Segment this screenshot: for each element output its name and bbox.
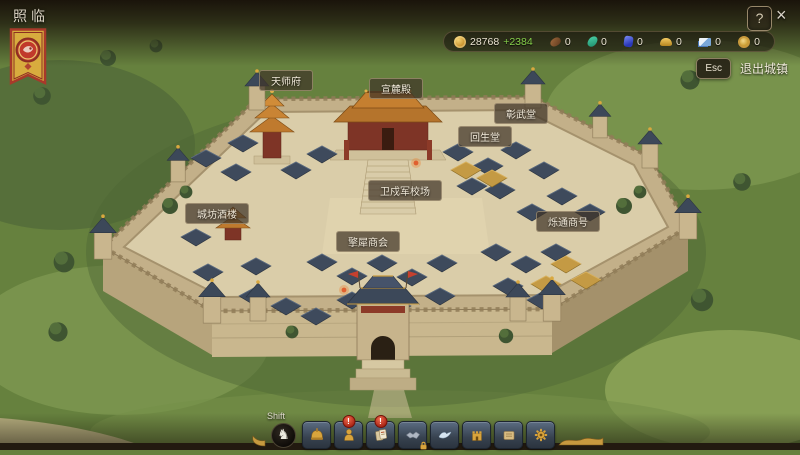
coin-icon xyxy=(454,36,466,48)
exit-town-label: 退出城镇 xyxy=(740,60,788,77)
alert-badge: ! xyxy=(374,415,387,428)
resource-value: 0 xyxy=(676,36,682,48)
building-label-jiulou[interactable]: 城坊酒楼 xyxy=(185,203,249,224)
resource-guild-token[interactable]: 0 xyxy=(738,36,760,48)
resource-value: 0 xyxy=(565,36,571,48)
ledger-button[interactable] xyxy=(494,421,523,449)
building-label-huishengtang[interactable]: 回生堂 xyxy=(458,126,512,147)
messenger-button[interactable] xyxy=(430,421,459,449)
token-icon xyxy=(738,36,750,48)
decrees-button[interactable]: ! xyxy=(366,421,395,449)
resource-value: 0 xyxy=(601,36,607,48)
esc-keycap: Esc xyxy=(696,58,731,79)
resource-bar: 28768 +2384 0 0 0 0 0 0 xyxy=(443,31,775,52)
building-label-jiaochang[interactable]: 卫戍军校场 xyxy=(368,180,442,201)
city-scene[interactable] xyxy=(0,0,800,450)
resource-jade[interactable]: 0 xyxy=(588,36,607,48)
resource-value: 0 xyxy=(637,36,643,48)
scroll-ornament-left xyxy=(250,432,267,447)
diplomacy-button[interactable] xyxy=(398,421,427,449)
alert-badge: ! xyxy=(342,415,355,428)
close-icon[interactable]: × xyxy=(776,5,787,26)
page-title: 照临 xyxy=(13,6,49,26)
bird-icon xyxy=(437,427,453,443)
scroll-ornament-right xyxy=(558,433,604,447)
banknote-icon xyxy=(699,38,711,46)
ingot-icon xyxy=(660,38,672,46)
gem-icon xyxy=(623,35,633,47)
city-illustration xyxy=(0,0,800,450)
helmet-icon xyxy=(309,427,325,443)
person-icon xyxy=(341,427,357,443)
ledger-icon xyxy=(501,427,517,443)
building-label-shanghui[interactable]: 擎犀商会 xyxy=(336,231,400,252)
faction-banner[interactable] xyxy=(9,28,47,93)
resource-value: 0 xyxy=(715,36,721,48)
fur-icon xyxy=(549,36,562,48)
lock-icon xyxy=(419,441,428,450)
resource-value: 0 xyxy=(754,36,760,48)
building-label-shanghao[interactable]: 烁通商号 xyxy=(536,211,600,232)
resource-fur[interactable]: 0 xyxy=(550,36,571,48)
resource-copper-coin[interactable]: 28768 +2384 xyxy=(454,36,533,48)
building-label-xuanludian[interactable]: 宣麓殿 xyxy=(369,78,423,99)
fort-icon xyxy=(469,427,485,443)
settings-button[interactable] xyxy=(526,421,555,449)
building-label-tianshifu[interactable]: 天师府 xyxy=(259,70,313,91)
resource-bonus: +2384 xyxy=(503,36,533,48)
resource-banknote[interactable]: 0 xyxy=(699,36,721,48)
scrolls-icon xyxy=(373,427,389,443)
building-label-zhangwutang[interactable]: 彰武堂 xyxy=(494,103,548,124)
resource-value: 28768 xyxy=(470,36,499,48)
bottom-toolbar: ♞ ! ! xyxy=(250,421,604,449)
cursor-mode-button[interactable]: ♞ xyxy=(271,423,296,448)
resource-lapis-gem[interactable]: 0 xyxy=(624,36,643,48)
shift-key-hint: Shift xyxy=(267,411,285,421)
gear-icon xyxy=(533,427,549,443)
jade-icon xyxy=(587,35,598,48)
help-button[interactable]: ? xyxy=(747,6,772,31)
population-button[interactable]: ! xyxy=(334,421,363,449)
army-button[interactable] xyxy=(302,421,331,449)
city-button[interactable] xyxy=(462,421,491,449)
resource-gold-ingot[interactable]: 0 xyxy=(660,36,682,48)
exit-town-button[interactable]: Esc 退出城镇 xyxy=(696,58,788,79)
